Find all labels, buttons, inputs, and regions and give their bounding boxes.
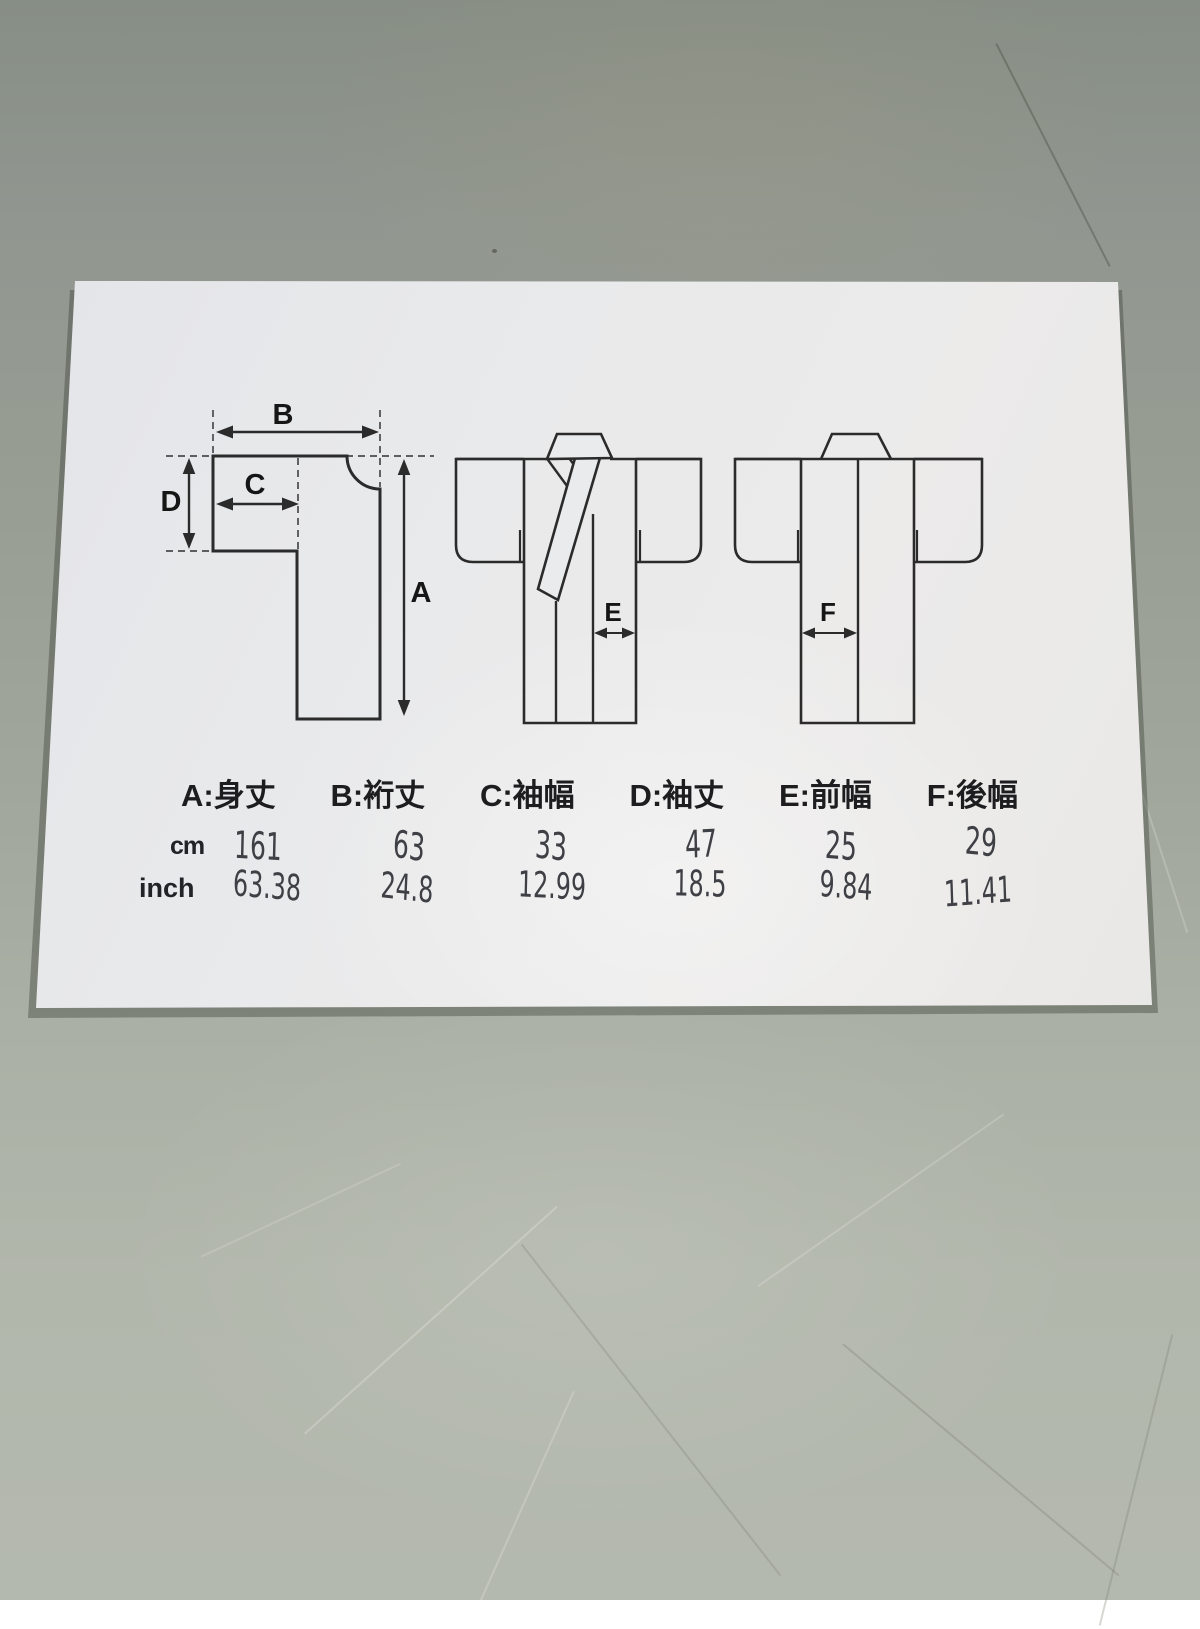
inch-value-f: 11.41	[943, 869, 1012, 915]
arrow-b	[216, 426, 379, 439]
legend-item-b: B:裄丈	[330, 770, 425, 815]
unit-label-cm: cm	[170, 832, 204, 861]
arrow-e	[594, 628, 635, 639]
back-right-sleeve	[914, 459, 982, 562]
label-f: F	[820, 597, 836, 627]
inch-value-e: 9.84	[819, 864, 873, 909]
kimono-front-view: E	[456, 434, 701, 723]
label-e: E	[604, 597, 621, 627]
arrow-a	[398, 459, 411, 716]
label-a: A	[411, 577, 432, 609]
back-collar	[821, 434, 891, 459]
arrow-f	[802, 628, 857, 639]
inch-value-c: 12.99	[518, 864, 587, 909]
label-b: B	[273, 399, 294, 431]
cm-value-d: 47	[685, 821, 718, 867]
table-surface: B D C A E	[0, 0, 1200, 1600]
label-d: D	[161, 486, 182, 518]
kimono-back-view: F	[735, 434, 982, 723]
inch-value-d: 18.5	[673, 863, 726, 905]
front-right-sleeve	[636, 459, 701, 562]
cm-value-b: 63	[392, 822, 427, 871]
collar-neck-band	[547, 434, 612, 459]
legend-item-c: C:袖幅	[480, 770, 575, 815]
back-left-sleeve	[735, 459, 801, 562]
inch-value-a: 63.38	[232, 863, 301, 909]
unit-label-inch: inch	[139, 873, 195, 904]
front-left-sleeve	[456, 459, 524, 562]
sleeve-body-outline	[213, 456, 380, 719]
legend-item-f: F:後幅	[927, 770, 1018, 815]
measurement-schematic: B D C A	[161, 399, 434, 719]
legend-item-e: E:前幅	[779, 770, 872, 815]
label-c: C	[245, 469, 266, 501]
legend-item-a: A:身丈	[181, 770, 276, 815]
legend-item-d: D:袖丈	[629, 770, 724, 815]
cm-value-c: 33	[534, 822, 568, 869]
inch-value-b: 24.8	[380, 865, 435, 911]
measurement-legend: A:身丈 B:裄丈 C:袖幅 D:袖丈 E:前幅 F:後幅	[181, 770, 1018, 815]
arrow-d	[183, 458, 196, 549]
cm-value-a: 161	[234, 823, 283, 870]
cm-value-e: 25	[824, 823, 857, 869]
cm-value-f: 29	[964, 818, 998, 865]
